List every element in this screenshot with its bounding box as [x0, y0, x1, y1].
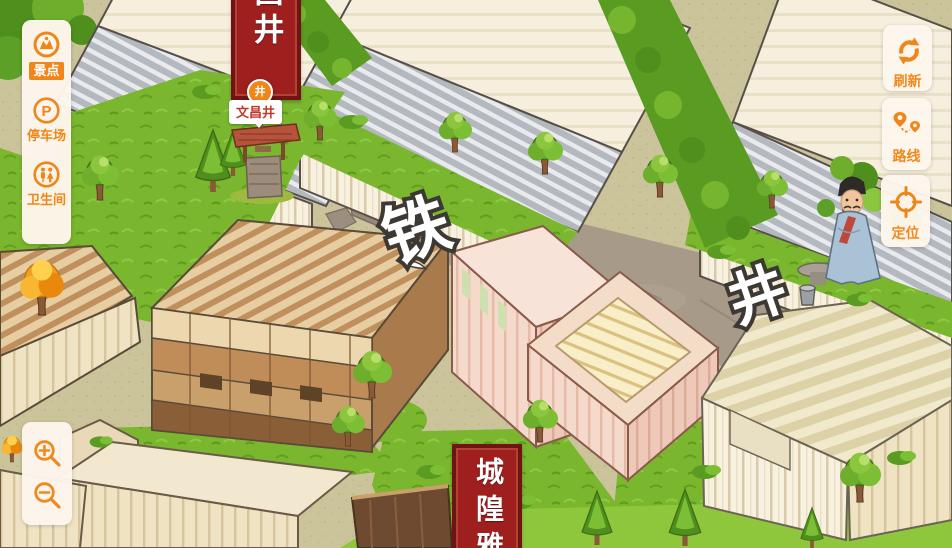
sidebar-item-scenic[interactable]: 景点	[29, 31, 63, 80]
parking-icon: P	[33, 97, 60, 124]
building-temple-roof	[352, 486, 452, 548]
zoom-out-button[interactable]	[33, 481, 61, 509]
poi-label-pointer	[253, 121, 265, 134]
zoom-in-button[interactable]	[33, 439, 61, 467]
locate-icon	[890, 186, 922, 218]
sidebar-item-restroom[interactable]: 卫生间	[27, 161, 66, 208]
sidebar-item-label: 停车场	[27, 128, 66, 144]
zoom-in-icon	[33, 439, 61, 467]
map-canvas[interactable]: 铁 井 昌井 城隍雅 井 文昌井 景点 P 停车场	[0, 0, 952, 548]
restroom-icon	[33, 161, 60, 188]
refresh-icon	[893, 36, 923, 66]
locate-button[interactable]: 定位	[881, 175, 930, 247]
locate-label: 定位	[892, 223, 920, 243]
svg-text:P: P	[41, 103, 51, 120]
zoom-out-icon	[33, 481, 61, 509]
route-icon	[891, 109, 923, 141]
sidebar-item-label: 卫生间	[27, 192, 66, 208]
refresh-label: 刷新	[894, 71, 922, 91]
zoom-controls	[22, 422, 72, 525]
sidebar-item-label: 景点	[29, 62, 63, 80]
route-button[interactable]: 路线	[882, 98, 931, 170]
sidebar-item-parking[interactable]: P 停车场	[27, 97, 66, 144]
bottom-banner-text: 城隍雅	[467, 448, 507, 548]
bottom-banner: 城隍雅	[452, 444, 522, 548]
sidebar-panel: 景点 P 停车场 卫生间	[22, 20, 71, 244]
refresh-button[interactable]: 刷新	[883, 25, 932, 91]
scenic-spot-icon	[33, 31, 60, 58]
route-label: 路线	[893, 146, 921, 166]
